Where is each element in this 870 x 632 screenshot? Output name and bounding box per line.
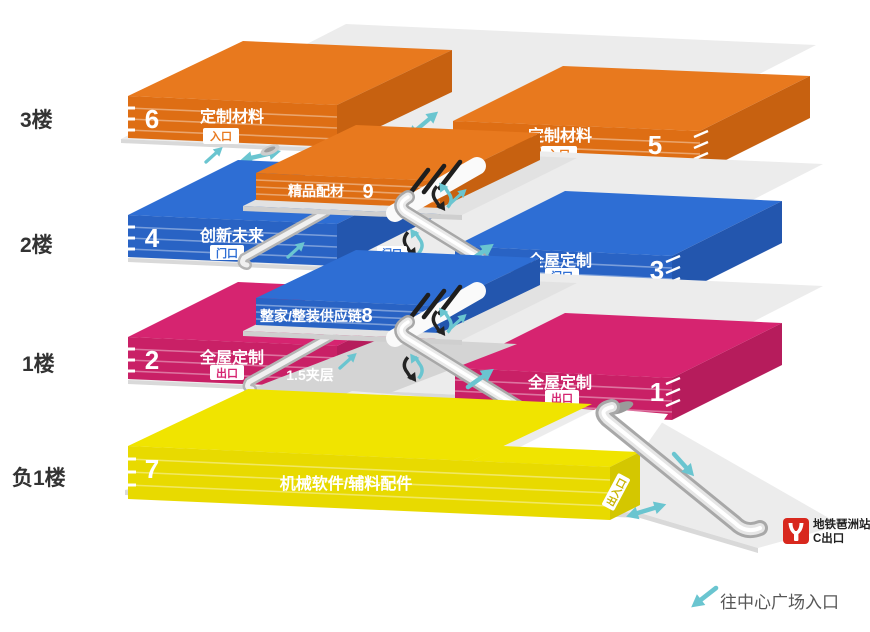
floor-2-label: 2楼 xyxy=(20,234,53,257)
hall-9-number: 9 xyxy=(362,181,373,203)
hall-1-number: 1 xyxy=(650,377,664,407)
hall-6-name: 定制材料 xyxy=(199,107,264,126)
hall-6-door-label: 入口 xyxy=(210,130,232,143)
floor-1: 2 全屋定制 出口 全屋定制 1 出口 1.5夹层 xyxy=(123,250,823,420)
hall-8-number: 8 xyxy=(361,305,372,327)
down-left-arrow-icon xyxy=(687,583,720,613)
hall-9-name: 精品配材 xyxy=(288,183,344,199)
hall-2-number: 2 xyxy=(145,345,159,375)
mezzanine-label: 1.5夹层 xyxy=(286,367,333,383)
hall-7-number: 7 xyxy=(145,454,159,484)
hall-7-name: 机械软件/辅料配件 xyxy=(280,474,412,493)
plaza-entrance-note: 往中心广场入口 xyxy=(687,583,839,613)
metro-exit-label: C出口 xyxy=(813,531,844,545)
hall-6-number: 6 xyxy=(145,104,159,134)
metro-station-label: 地铁琶洲站 xyxy=(813,517,870,531)
hall-4-name: 创新未来 xyxy=(199,226,265,245)
hall-4-door-label: 门口 xyxy=(216,246,238,260)
metro-exit: 地铁琶洲站 C出口 xyxy=(783,517,870,545)
plaza-entrance-label: 往中心广场入口 xyxy=(720,593,839,612)
hall-7-block: 7 机械软件/辅料配件 出入口 xyxy=(122,389,640,520)
isometric-floor-diagram: 6 定制材料 入口 定制材料 5 入口 入口 xyxy=(0,0,870,632)
floor-3-label: 3楼 xyxy=(20,109,53,132)
hall-8-name: 整家/整装供应链 xyxy=(259,308,363,324)
floor-map: 6 定制材料 入口 定制材料 5 入口 入口 xyxy=(0,0,870,632)
hall-2-name: 全屋定制 xyxy=(199,348,264,367)
floor-b1-label: 负1楼 xyxy=(12,467,66,490)
hall-5-number: 5 xyxy=(648,130,662,160)
hall-2-door-label: 出口 xyxy=(216,366,238,380)
floor-b1: 7 机械软件/辅料配件 出入口 地铁琶洲站 C出口 xyxy=(122,389,870,553)
hall-4-number: 4 xyxy=(145,223,160,253)
floor-1-label: 1楼 xyxy=(22,353,55,376)
hall-1-name: 全屋定制 xyxy=(527,373,592,392)
